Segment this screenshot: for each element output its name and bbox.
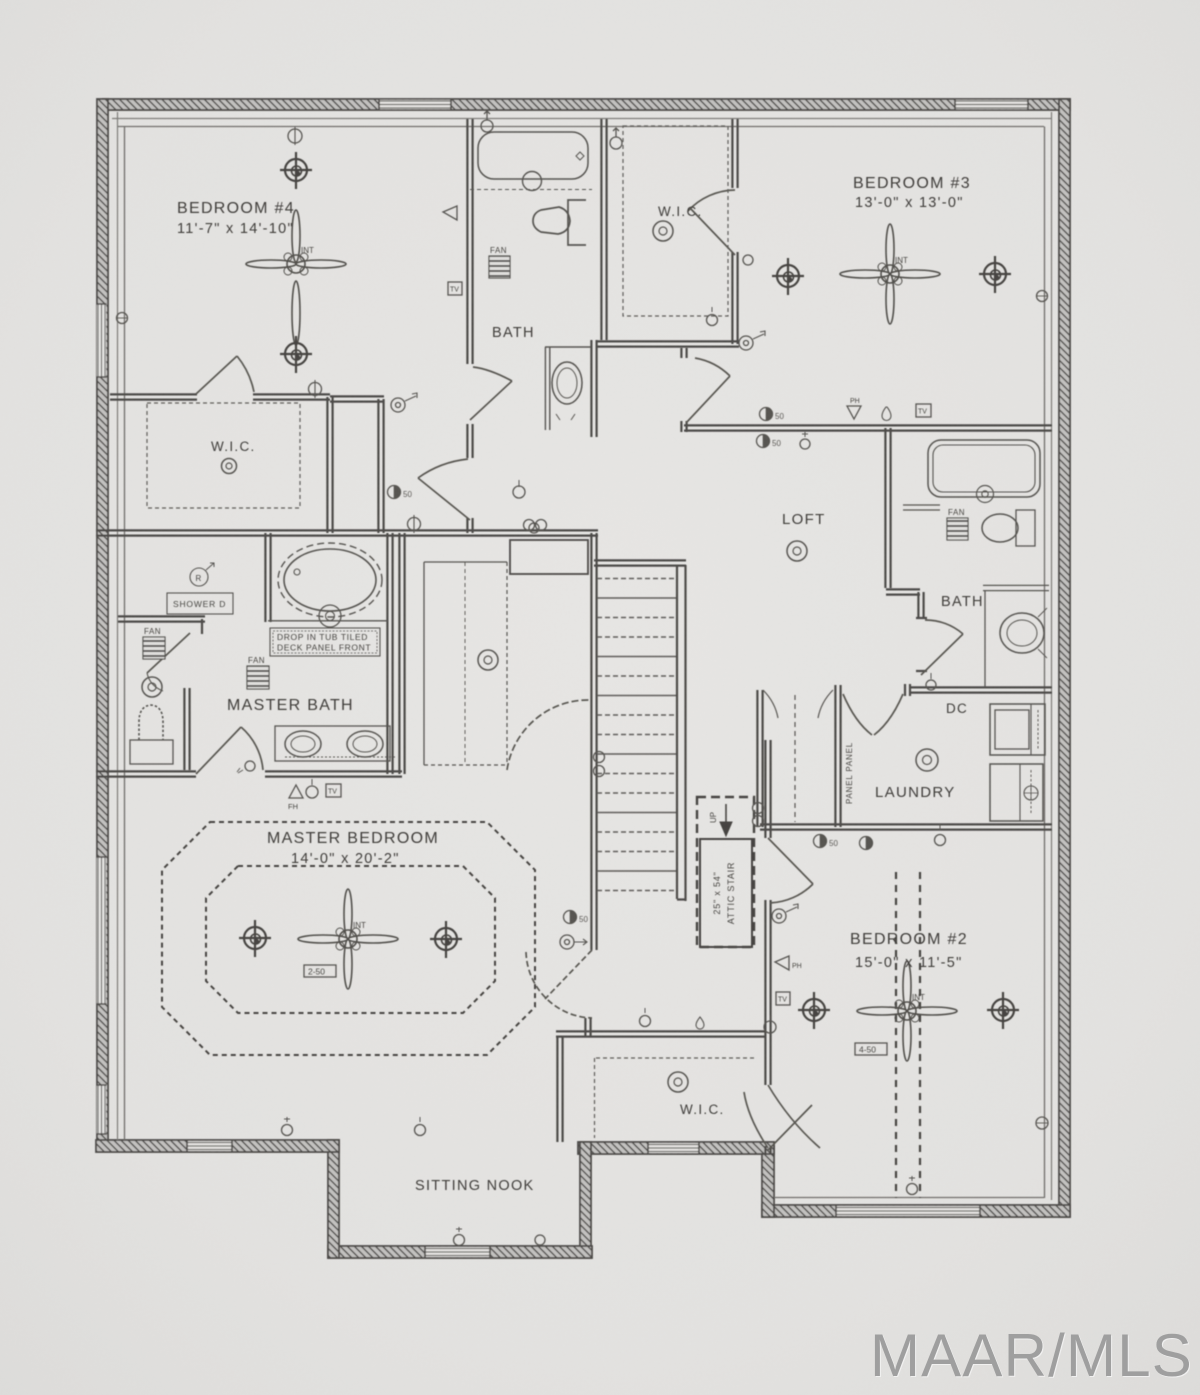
svg-text:MAAR/MLS: MAAR/MLS [870, 1322, 1193, 1389]
